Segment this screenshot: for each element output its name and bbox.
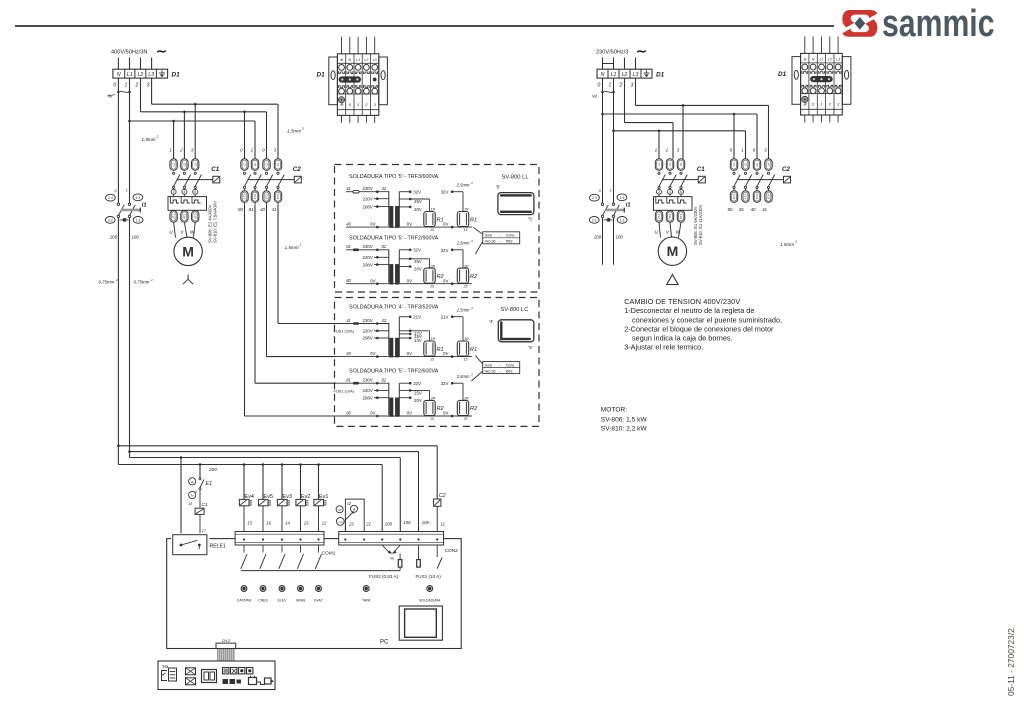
svg-text:32V: 32V <box>413 381 421 386</box>
svg-text:2: 2 <box>470 373 473 377</box>
svg-text:2.3: 2.3 <box>108 218 113 222</box>
svg-text:2-Conectar el bloque de conexi: 2-Conectar el bloque de conexiones del m… <box>624 324 774 333</box>
svg-text:400V/50Hz/3N: 400V/50Hz/3N <box>111 50 147 56</box>
svg-text:81: 81 <box>346 244 351 249</box>
svg-text:230V: 230V <box>363 378 373 383</box>
svg-text:COM: COM <box>338 522 343 524</box>
svg-text:15: 15 <box>430 228 434 232</box>
svg-text:20V: 20V <box>414 398 422 403</box>
svg-text:L2: L2 <box>744 163 748 167</box>
svg-text:→: → <box>498 369 502 373</box>
svg-text:SV-800 LC: SV-800 LC <box>500 307 528 313</box>
svg-text:21V: 21V <box>441 315 449 320</box>
svg-text:4T2: 4T2 <box>668 213 672 219</box>
svg-text:SV-800 LL: SV-800 LL <box>502 175 530 181</box>
svg-text:81: 81 <box>346 378 351 383</box>
svg-text:segun indica la caja de bornes: segun indica la caja de bornes. <box>632 334 733 343</box>
svg-text:Ø52: Ø52 <box>506 240 513 244</box>
svg-text:32V: 32V <box>413 190 421 195</box>
svg-text:L4: L4 <box>767 163 771 167</box>
svg-text:L3: L3 <box>265 163 269 167</box>
svg-text:'4': '4' <box>489 319 493 324</box>
svg-text:6: 6 <box>194 190 196 194</box>
svg-text:2: 2 <box>156 135 159 139</box>
svg-text:100: 100 <box>615 235 623 240</box>
svg-text:2: 2 <box>179 148 183 153</box>
svg-text:40: 40 <box>346 222 351 227</box>
svg-text:sammic: sammic <box>882 3 995 45</box>
svg-text:∼: ∼ <box>636 44 647 59</box>
svg-text:4: 4 <box>184 190 186 194</box>
svg-text:D1: D1 <box>172 71 181 78</box>
svg-text:SOLDADURA TIPO '5' - TRF2/600V: SOLDADURA TIPO '5' - TRF2/600VA <box>349 368 439 374</box>
svg-text:EVAC: EVAC <box>314 599 324 603</box>
svg-text:2: 2 <box>470 239 473 243</box>
svg-text:FUS1 (10A): FUS1 (10A) <box>334 388 355 393</box>
svg-text:0V: 0V <box>370 278 375 283</box>
svg-text:R2: R2 <box>470 274 478 280</box>
svg-text:41: 41 <box>346 318 351 323</box>
svg-text:4: 4 <box>669 190 671 194</box>
svg-text:0V: 0V <box>370 351 375 356</box>
svg-text:2: 2 <box>173 190 175 194</box>
svg-text:R2: R2 <box>437 274 445 280</box>
svg-text:2,5mm: 2,5mm <box>456 183 470 188</box>
svg-text:2,5mm: 2,5mm <box>456 308 470 313</box>
svg-text:0: 0 <box>195 490 197 494</box>
svg-text:I1: I1 <box>142 202 147 208</box>
svg-text:Ve: Ve <box>108 94 114 99</box>
svg-text:CAT/PAN: CAT/PAN <box>237 599 252 603</box>
svg-text:0V: 0V <box>443 411 448 416</box>
svg-text:32V: 32V <box>413 248 421 253</box>
svg-text:C1: C1 <box>211 166 219 173</box>
svg-text:2: 2 <box>150 278 153 282</box>
svg-text:230V/50Hz/3: 230V/50Hz/3 <box>596 50 628 56</box>
svg-text:E1: E1 <box>206 481 213 487</box>
svg-text:CON2: CON2 <box>445 548 459 554</box>
svg-text:220V: 220V <box>363 196 373 201</box>
svg-text:6T3: 6T3 <box>265 194 269 200</box>
svg-text:2T1: 2T1 <box>657 213 661 219</box>
svg-text:I1: I1 <box>626 202 631 208</box>
svg-text:I2: I2 <box>347 501 351 506</box>
svg-text:∼: ∼ <box>156 44 167 59</box>
svg-text:11: 11 <box>441 522 446 527</box>
svg-text:L1: L1 <box>820 58 824 62</box>
svg-text:L4: L4 <box>276 163 280 167</box>
svg-text:100: 100 <box>131 235 139 240</box>
svg-text:0V: 0V <box>407 411 412 416</box>
svg-text:M: M <box>182 243 194 259</box>
svg-text:25: 25 <box>463 417 468 421</box>
svg-text:2T1: 2T1 <box>732 194 736 200</box>
svg-text:21: 21 <box>365 522 371 527</box>
svg-text:FUS1 (10 A): FUS1 (10 A) <box>416 574 442 579</box>
svg-text:80: 80 <box>346 410 351 415</box>
svg-text:3-Ajustar el rele termico.: 3-Ajustar el rele termico. <box>624 343 703 352</box>
svg-text:CN 2: CN 2 <box>222 639 230 643</box>
svg-text:25V: 25V <box>414 259 422 264</box>
svg-text:15: 15 <box>464 228 468 232</box>
svg-text:R2: R2 <box>437 406 445 412</box>
svg-text:conexiones y conectar el puent: conexiones y conectar el puente suminist… <box>632 315 782 324</box>
svg-text:2: 2 <box>619 82 623 88</box>
svg-text:6T3: 6T3 <box>755 194 759 200</box>
svg-text:L1: L1 <box>732 163 736 167</box>
svg-text:L2: L2 <box>364 58 368 62</box>
svg-text:05-11 - 2700723/2: 05-11 - 2700723/2 <box>1006 628 1016 696</box>
svg-text:3: 3 <box>677 148 680 153</box>
svg-text:4x0,36: 4x0,36 <box>485 240 496 244</box>
svg-text:L3: L3 <box>193 163 197 167</box>
svg-text:L2: L2 <box>253 163 257 167</box>
svg-text:Corte: Corte <box>506 234 515 238</box>
svg-text:L1: L1 <box>657 163 661 167</box>
svg-text:8T4: 8T4 <box>276 194 280 200</box>
svg-text:CAMBIO DE TENSION 400V/230V: CAMBIO DE TENSION 400V/230V <box>624 297 740 306</box>
svg-text:L1: L1 <box>356 58 360 62</box>
svg-text:2: 2 <box>658 190 660 194</box>
svg-text:Ev4: Ev4 <box>244 494 254 500</box>
svg-text:C2: C2 <box>293 166 301 173</box>
svg-text:208V: 208V <box>363 336 373 341</box>
svg-text:L2: L2 <box>183 163 187 167</box>
svg-text:1.4: 1.4 <box>620 196 625 200</box>
svg-text:80: 80 <box>238 207 243 212</box>
svg-text:L2: L2 <box>622 72 628 78</box>
svg-text:80: 80 <box>728 207 733 212</box>
svg-text:1: 1 <box>820 102 822 107</box>
svg-text:1-Desconectar el neutro de la: 1-Desconectar el neutro de la regleta de <box>624 306 754 315</box>
svg-text:22: 22 <box>348 522 354 527</box>
svg-text:1: 1 <box>126 189 128 193</box>
svg-text:CRES: CRES <box>258 599 268 603</box>
svg-text:C1: C1 <box>202 502 208 508</box>
svg-text:25: 25 <box>429 417 434 421</box>
svg-text:SV-810: E1 7,5A/400V: SV-810: E1 7,5A/400V <box>213 201 218 243</box>
svg-text:L3: L3 <box>148 72 154 78</box>
svg-text:40: 40 <box>751 207 756 212</box>
svg-text:16: 16 <box>266 520 271 525</box>
svg-text:COM1: COM1 <box>322 551 336 557</box>
svg-text:TAPA: TAPA <box>362 599 371 603</box>
svg-text:L2: L2 <box>138 72 144 78</box>
svg-text:SV-810: E1 11A/230V: SV-810: E1 11A/230V <box>698 204 703 245</box>
svg-text:2.3: 2.3 <box>592 218 597 222</box>
svg-text:C2: C2 <box>439 493 446 499</box>
svg-text:14: 14 <box>285 520 290 525</box>
svg-text:230V: 230V <box>363 186 373 191</box>
svg-text:L3: L3 <box>373 58 377 62</box>
svg-text:81: 81 <box>739 207 744 212</box>
svg-text:L1: L1 <box>243 163 247 167</box>
svg-text:41: 41 <box>272 207 277 212</box>
svg-text:L1: L1 <box>611 72 617 78</box>
svg-text:0: 0 <box>240 148 243 153</box>
svg-text:208V: 208V <box>363 395 373 400</box>
svg-text:2: 2 <box>135 82 139 88</box>
svg-text:0V: 0V <box>407 278 412 283</box>
svg-text:81: 81 <box>249 207 254 212</box>
svg-text:N: N <box>601 72 605 78</box>
svg-text:2: 2 <box>470 306 473 310</box>
svg-text:3: 3 <box>274 148 277 153</box>
svg-text:3: 3 <box>191 148 194 153</box>
svg-text:18: 18 <box>188 502 192 506</box>
svg-text:0: 0 <box>113 82 116 88</box>
svg-text:2: 2 <box>115 278 118 282</box>
svg-text:0V: 0V <box>443 351 448 356</box>
svg-text:N: N <box>117 72 121 78</box>
svg-text:21V: 21V <box>413 315 421 320</box>
svg-text:L3: L3 <box>755 163 759 167</box>
svg-text:32V: 32V <box>441 248 449 253</box>
svg-text:100: 100 <box>403 520 411 525</box>
svg-text:4T2: 4T2 <box>744 194 748 200</box>
svg-text:15: 15 <box>464 358 468 362</box>
svg-text:L3: L3 <box>633 72 639 78</box>
svg-text:Corte: Corte <box>506 363 515 367</box>
svg-text:Ø52: Ø52 <box>506 369 513 373</box>
svg-text:0V: 0V <box>370 411 375 416</box>
svg-text:220V: 220V <box>363 255 373 260</box>
svg-text:200: 200 <box>384 522 393 527</box>
svg-text:1: 1 <box>169 148 172 153</box>
svg-text:0V: 0V <box>407 351 412 356</box>
svg-text:R1: R1 <box>470 217 477 223</box>
svg-text:1: 1 <box>655 148 658 153</box>
svg-text:GRAS: GRAS <box>296 599 306 603</box>
svg-text:2: 2 <box>301 127 304 131</box>
svg-text:41: 41 <box>762 207 767 212</box>
svg-text:200: 200 <box>208 467 217 472</box>
svg-text:FUS2 (0,63 A): FUS2 (0,63 A) <box>369 574 399 579</box>
svg-text:1,5mm: 1,5mm <box>142 137 156 142</box>
svg-text:20V: 20V <box>414 267 422 272</box>
svg-text:SOLDADURA TIPO '5' - TRF2/900V: SOLDADURA TIPO '5' - TRF2/900VA <box>349 235 439 241</box>
svg-text:0,75mm: 0,75mm <box>99 280 115 285</box>
svg-text:200: 200 <box>593 235 602 240</box>
svg-text:3: 3 <box>764 148 767 153</box>
svg-text:0: 0 <box>753 148 756 153</box>
svg-text:←: ← <box>498 234 502 238</box>
svg-text:230V: 230V <box>363 244 373 249</box>
svg-text:25V: 25V <box>414 391 422 396</box>
svg-text:L3: L3 <box>679 163 683 167</box>
svg-text:1: 1 <box>609 82 612 88</box>
svg-text:220V: 220V <box>363 329 373 334</box>
svg-text:2: 2 <box>665 148 669 153</box>
svg-text:230V: 230V <box>363 318 373 323</box>
svg-text:220V: 220V <box>363 388 373 393</box>
svg-text:25: 25 <box>429 285 434 289</box>
svg-text:2.4: 2.4 <box>592 196 597 200</box>
svg-text:2T1: 2T1 <box>172 213 176 219</box>
svg-text:13V: 13V <box>414 338 422 343</box>
svg-text:32V: 32V <box>441 190 449 195</box>
svg-text:2T1: 2T1 <box>243 194 247 200</box>
svg-text:1.3: 1.3 <box>136 218 141 222</box>
svg-text:2: 2 <box>794 240 797 244</box>
svg-text:25V: 25V <box>414 199 422 204</box>
svg-text:0V: 0V <box>443 222 448 227</box>
svg-text:6: 6 <box>680 190 682 194</box>
svg-text:1,5mm: 1,5mm <box>780 242 794 247</box>
svg-text:Ve: Ve <box>390 557 394 561</box>
svg-text:1: 1 <box>251 148 254 153</box>
svg-text:L1: L1 <box>127 72 133 78</box>
svg-text:N: N <box>348 58 351 62</box>
svg-text:2: 2 <box>299 243 302 247</box>
svg-text:Sold: Sold <box>485 363 492 367</box>
svg-text:D1: D1 <box>317 72 326 79</box>
svg-text:'5': '5' <box>528 217 532 222</box>
svg-text:0V: 0V <box>370 222 375 227</box>
svg-text:←: ← <box>498 363 502 367</box>
svg-text:42: 42 <box>382 318 387 323</box>
svg-text:ELEV: ELEV <box>278 599 287 603</box>
svg-text:Sold: Sold <box>485 234 492 238</box>
svg-text:82: 82 <box>382 244 387 249</box>
svg-text:N: N <box>812 58 815 62</box>
svg-text:3: 3 <box>147 82 150 88</box>
svg-text:40: 40 <box>346 351 351 356</box>
svg-text:'5': '5' <box>528 345 532 350</box>
svg-text:6T3: 6T3 <box>193 213 197 219</box>
svg-text:PC: PC <box>380 640 389 646</box>
svg-text:Ev1: Ev1 <box>319 494 329 500</box>
svg-text:20V: 20V <box>414 207 422 212</box>
svg-text:R1: R1 <box>437 347 444 353</box>
svg-text:2,5mm: 2,5mm <box>456 241 470 246</box>
svg-text:15: 15 <box>247 520 252 525</box>
svg-text:FUS1 (10A): FUS1 (10A) <box>334 329 355 334</box>
svg-text:0V: 0V <box>407 222 412 227</box>
svg-text:L1: L1 <box>172 163 176 167</box>
svg-text:1: 1 <box>741 148 744 153</box>
svg-text:L3: L3 <box>836 58 840 62</box>
svg-text:4T2: 4T2 <box>253 194 257 200</box>
svg-text:MOTOR:: MOTOR: <box>601 407 627 414</box>
svg-text:3: 3 <box>631 82 634 88</box>
svg-text:Ev5: Ev5 <box>263 494 273 500</box>
svg-text:1,5mm: 1,5mm <box>285 245 299 250</box>
svg-text:0V: 0V <box>443 278 448 283</box>
svg-text:2: 2 <box>470 181 473 185</box>
svg-text:80: 80 <box>346 278 351 283</box>
svg-text:2,5mm: 2,5mm <box>456 374 470 379</box>
svg-text:25: 25 <box>463 285 468 289</box>
svg-text:C1: C1 <box>697 166 705 173</box>
svg-text:0: 0 <box>262 148 265 153</box>
svg-text:4T2: 4T2 <box>183 213 187 219</box>
svg-text:Ve: Ve <box>190 480 194 484</box>
svg-text:→: → <box>498 240 502 244</box>
svg-text:Ve: Ve <box>592 94 598 99</box>
svg-text:R2: R2 <box>470 406 478 412</box>
svg-text:1.3: 1.3 <box>620 218 625 222</box>
svg-text:1: 1 <box>357 102 359 107</box>
svg-text:82: 82 <box>382 378 387 383</box>
svg-text:15: 15 <box>430 358 434 362</box>
svg-text:40: 40 <box>260 207 265 212</box>
svg-text:208V: 208V <box>363 262 373 267</box>
svg-text:SV-806: 1,5 kW: SV-806: 1,5 kW <box>601 416 648 423</box>
svg-text:R1: R1 <box>470 347 477 353</box>
svg-text:0,75mm: 0,75mm <box>134 280 150 285</box>
svg-text:42: 42 <box>382 186 387 191</box>
svg-text:1,5mm: 1,5mm <box>287 129 301 134</box>
svg-text:0: 0 <box>598 82 601 88</box>
svg-text:100: 100 <box>422 520 430 525</box>
svg-text:Ev3: Ev3 <box>282 494 292 500</box>
svg-text:SOLDADURA TIPO '5' - TRF3/600V: SOLDADURA TIPO '5' - TRF3/600VA <box>349 174 439 180</box>
svg-text:L2: L2 <box>668 163 672 167</box>
svg-text:1: 1 <box>610 189 612 193</box>
svg-text:0: 0 <box>730 148 733 153</box>
svg-text:13: 13 <box>304 520 309 525</box>
svg-text:208V: 208V <box>363 204 373 209</box>
svg-text:12: 12 <box>322 520 327 525</box>
svg-text:'5': '5' <box>496 185 500 190</box>
svg-text:200: 200 <box>109 235 118 240</box>
svg-text:C2: C2 <box>782 166 790 173</box>
svg-text:SOLDADURA: SOLDADURA <box>419 599 441 603</box>
svg-text:D1: D1 <box>656 71 665 78</box>
svg-text:L2: L2 <box>828 58 832 62</box>
svg-text:41: 41 <box>346 186 351 191</box>
svg-text:8T4: 8T4 <box>767 194 771 200</box>
svg-text:1: 1 <box>125 82 128 88</box>
svg-text:1.4: 1.4 <box>136 196 141 200</box>
svg-text:RELE1: RELE1 <box>210 544 227 550</box>
svg-text:R1: R1 <box>437 217 444 223</box>
svg-text:6T3: 6T3 <box>679 213 683 219</box>
svg-text:M: M <box>667 243 679 259</box>
svg-text:Ev2: Ev2 <box>301 494 311 500</box>
svg-text:D1: D1 <box>778 71 787 78</box>
svg-text:SV-810: 2,2 kW: SV-810: 2,2 kW <box>601 426 648 433</box>
svg-text:4x0,36: 4x0,36 <box>485 369 496 373</box>
svg-text:SOLDADURA TIPO '4' - TRF3/520V: SOLDADURA TIPO '4' - TRF3/520VA <box>349 305 439 311</box>
svg-text:32V: 32V <box>441 381 449 386</box>
svg-text:2.4: 2.4 <box>108 196 113 200</box>
